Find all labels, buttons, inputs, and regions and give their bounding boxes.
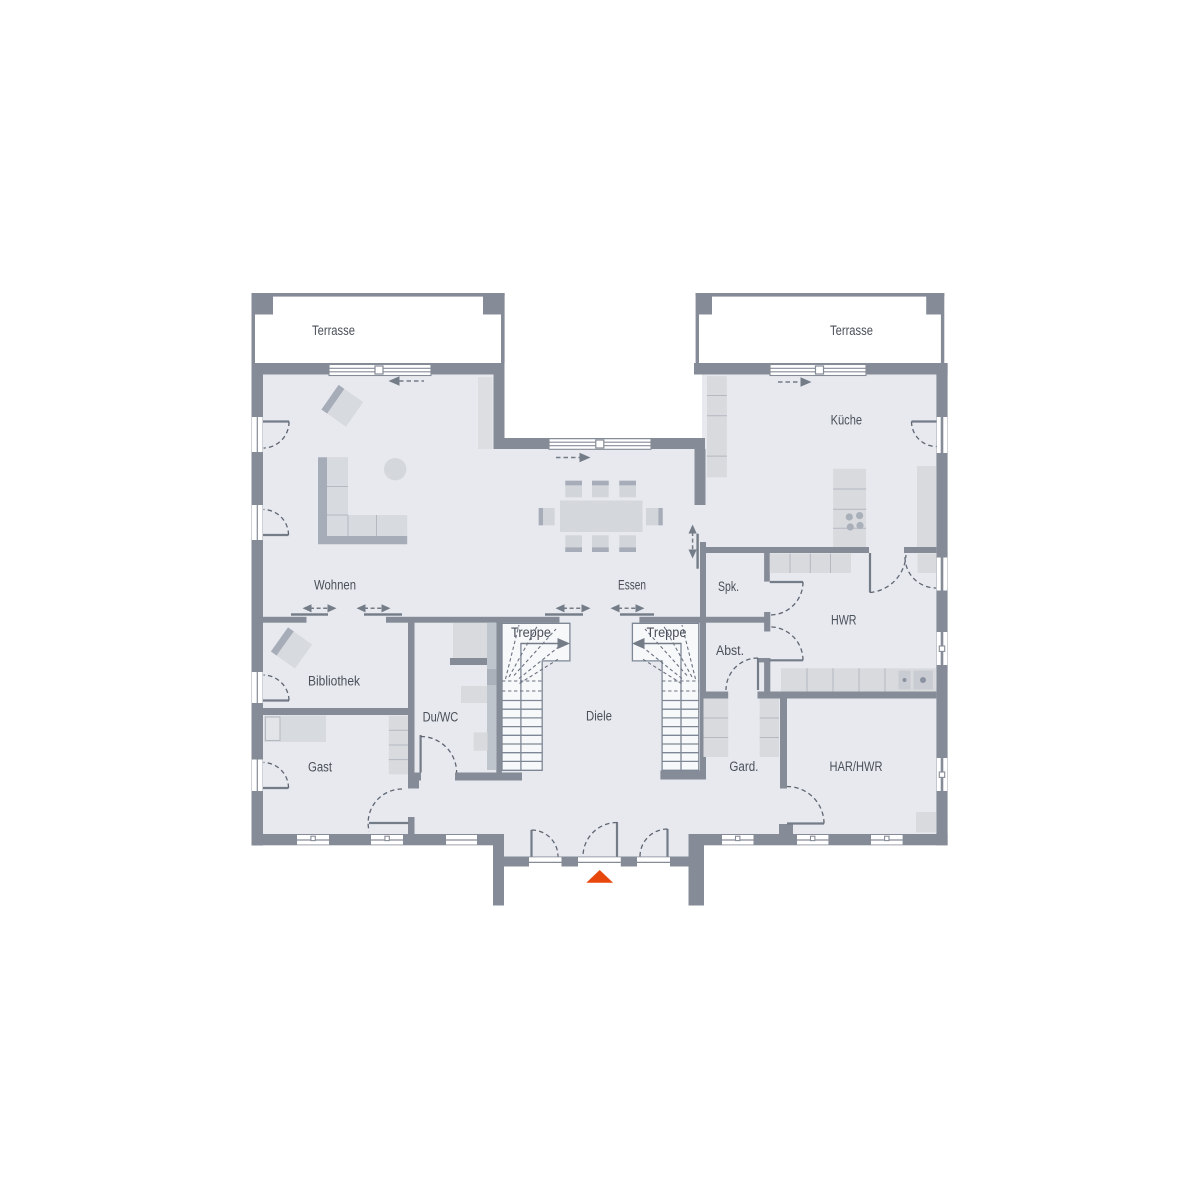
svg-text:Gard.: Gard. <box>729 759 758 774</box>
svg-text:Terrasse: Terrasse <box>312 323 355 338</box>
svg-text:Du/WC: Du/WC <box>423 710 459 725</box>
svg-text:Bibliothek: Bibliothek <box>308 674 360 689</box>
svg-text:Treppe: Treppe <box>647 625 687 640</box>
svg-text:HAR/HWR: HAR/HWR <box>830 759 883 774</box>
svg-text:Treppe: Treppe <box>511 625 551 640</box>
svg-text:Spk.: Spk. <box>718 579 739 594</box>
svg-text:Gast: Gast <box>308 760 332 775</box>
svg-text:Terrasse: Terrasse <box>830 323 873 338</box>
svg-text:Diele: Diele <box>586 709 612 724</box>
svg-text:Abst.: Abst. <box>716 643 744 658</box>
svg-text:Essen: Essen <box>618 578 646 593</box>
svg-text:HWR: HWR <box>831 613 857 628</box>
svg-text:Wohnen: Wohnen <box>314 578 356 593</box>
svg-text:Küche: Küche <box>831 413 863 428</box>
